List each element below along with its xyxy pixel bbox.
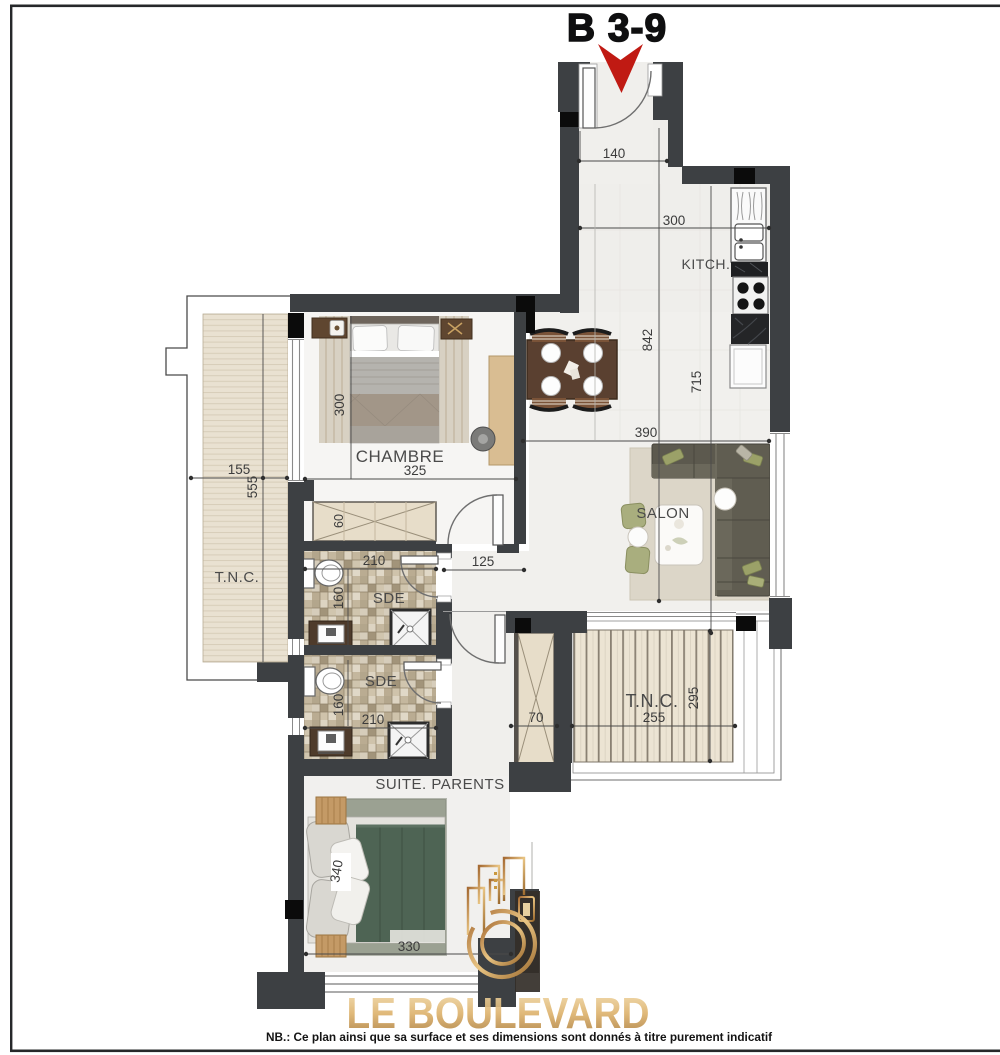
svg-text:160: 160 xyxy=(331,587,346,610)
svg-text:155: 155 xyxy=(228,462,251,477)
svg-text:255: 255 xyxy=(643,710,666,725)
svg-text:210: 210 xyxy=(362,712,385,727)
svg-text:210: 210 xyxy=(363,553,386,568)
svg-text:295: 295 xyxy=(686,687,701,710)
svg-text:SUITE. PARENTS: SUITE. PARENTS xyxy=(375,776,504,793)
svg-text:CHAMBRE: CHAMBRE xyxy=(356,447,445,466)
svg-text:SALON: SALON xyxy=(636,505,689,522)
svg-text:300: 300 xyxy=(663,213,686,228)
svg-text:300: 300 xyxy=(332,394,347,417)
svg-text:KITCH.: KITCH. xyxy=(682,256,731,272)
svg-text:SDE: SDE xyxy=(365,673,397,690)
svg-text:330: 330 xyxy=(398,939,421,954)
svg-text:T.N.C.: T.N.C. xyxy=(625,691,678,711)
svg-text:B 3-9: B 3-9 xyxy=(567,7,667,50)
svg-text:140: 140 xyxy=(603,146,626,161)
svg-text:125: 125 xyxy=(472,554,495,569)
svg-text:T.N.C.: T.N.C. xyxy=(215,569,260,586)
svg-text:70: 70 xyxy=(528,710,543,725)
svg-text:SDE: SDE xyxy=(373,590,405,607)
svg-text:60: 60 xyxy=(332,514,346,528)
svg-text:390: 390 xyxy=(635,425,658,440)
svg-text:NB.: Ce plan ainsi que sa surf: NB.: Ce plan ainsi que sa surface et ses… xyxy=(266,1030,772,1044)
svg-text:715: 715 xyxy=(689,371,704,394)
svg-text:160: 160 xyxy=(331,694,346,717)
svg-text:555: 555 xyxy=(245,476,260,499)
svg-text:842: 842 xyxy=(640,329,655,352)
